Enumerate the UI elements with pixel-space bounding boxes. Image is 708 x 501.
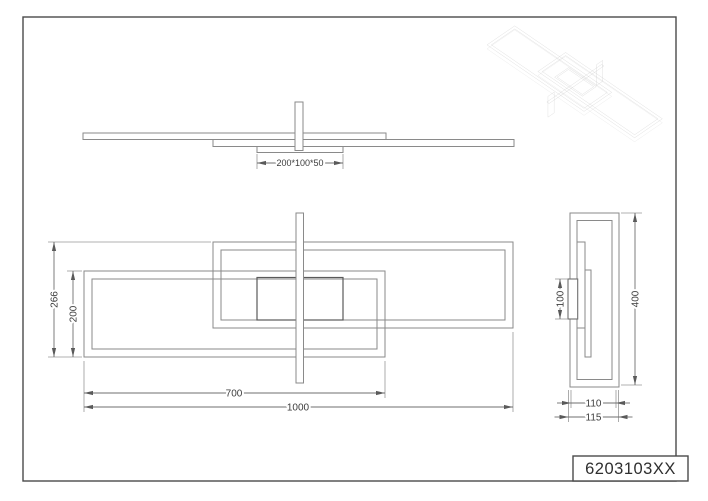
dim-total-length: 1000 xyxy=(84,403,513,414)
total-width-label: 115 xyxy=(586,412,602,423)
iso-canopy xyxy=(555,68,597,97)
iso-frame-lower-thickness xyxy=(538,57,662,142)
front-vertical-blade xyxy=(295,102,303,151)
total-depth-label: 266 xyxy=(50,291,61,308)
front-canopy-size-label: 200*100*50 xyxy=(276,158,323,168)
canopy-height-label: 100 xyxy=(556,290,567,307)
frame-depth-label: 200 xyxy=(69,305,80,322)
dimension-drawing: 200*100*50 xyxy=(0,0,708,501)
fixture-height-label: 400 xyxy=(631,290,642,307)
side-blade-edge xyxy=(585,270,591,357)
iso-frame-lower xyxy=(520,46,671,150)
dim-body-width: 110 xyxy=(557,398,630,409)
side-view: 100 400 110 115 xyxy=(555,213,643,423)
plan-vertical-blade xyxy=(296,213,304,383)
iso-blade-fins xyxy=(548,59,603,119)
dim-total-depth: 266 xyxy=(50,242,61,357)
front-frame-bar-left xyxy=(83,133,386,140)
isometric-view xyxy=(487,26,672,150)
front-canopy-dimension: 200*100*50 xyxy=(257,154,343,169)
title-block: 6203103XX xyxy=(573,456,688,481)
front-view: 200*100*50 xyxy=(83,102,514,169)
iso-frame-upper xyxy=(487,26,612,112)
body-width-label: 110 xyxy=(586,398,602,409)
side-canopy xyxy=(568,279,578,319)
plan-frame-right-inner xyxy=(221,250,505,320)
plan-frame-right-outer xyxy=(213,242,513,328)
technical-drawing-page: 200*100*50 xyxy=(0,0,708,501)
dim-fixture-height: 400 xyxy=(631,213,642,385)
plan-frame-left-outer xyxy=(84,271,385,357)
plan-view: 266 200 700 1000 xyxy=(48,213,513,414)
dim-total-width: 115 xyxy=(555,412,633,423)
frame-length-label: 700 xyxy=(226,389,243,400)
part-number-label: 6203103XX xyxy=(585,460,676,478)
plan-frame-left-inner xyxy=(92,279,377,349)
iso-blade-fin-near xyxy=(596,60,602,85)
iso-blade xyxy=(547,64,604,103)
front-frame-bar-right xyxy=(213,140,514,147)
dim-canopy-height: 100 xyxy=(556,279,567,319)
iso-blade-fin-far xyxy=(548,92,554,117)
dim-frame-depth: 200 xyxy=(69,271,80,357)
iso-frame-upper-thickness xyxy=(487,30,612,116)
total-length-label: 1000 xyxy=(287,403,310,414)
dim-frame-length: 700 xyxy=(84,389,385,400)
